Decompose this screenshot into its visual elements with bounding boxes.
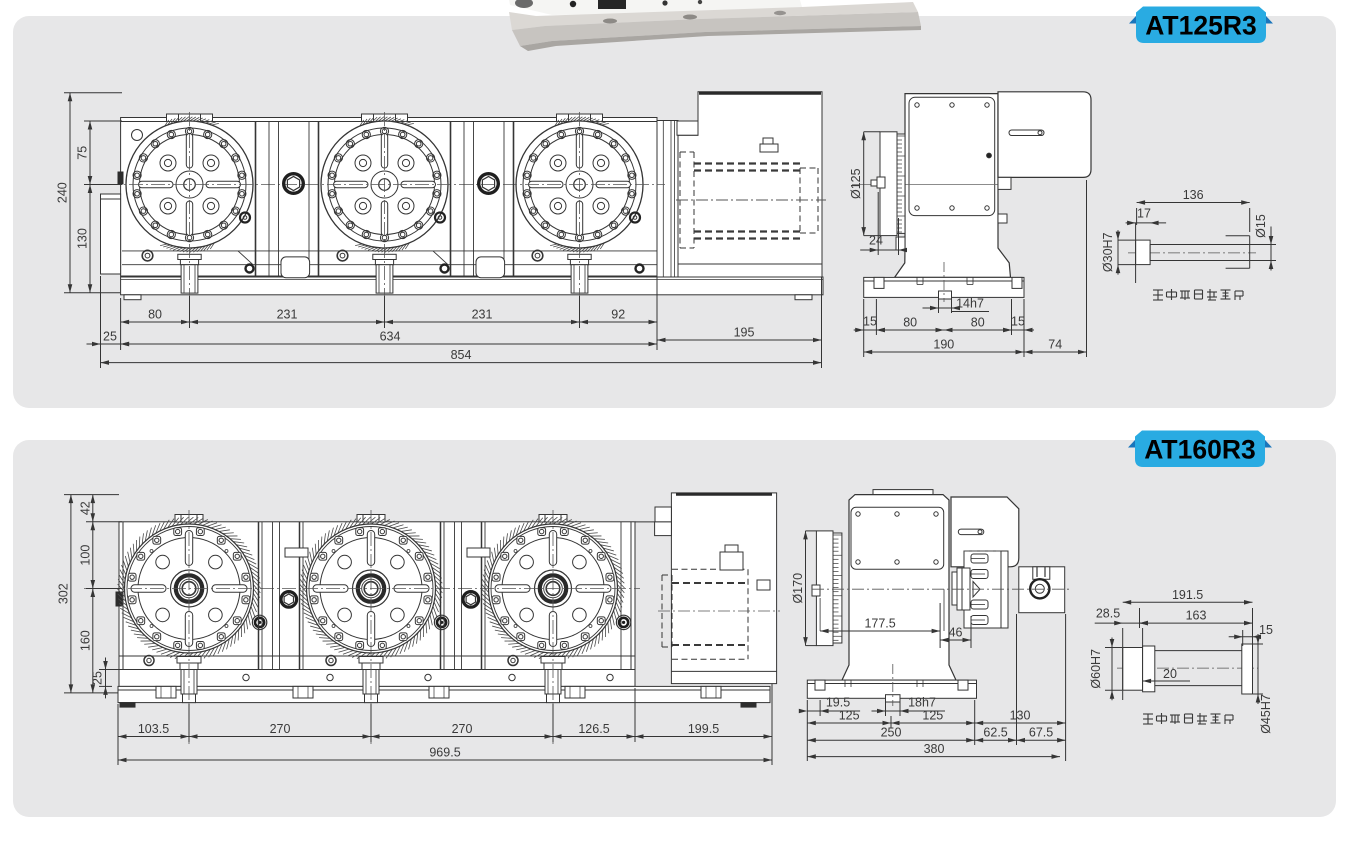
svg-text:18h7: 18h7 xyxy=(908,696,936,710)
svg-text:Ø170: Ø170 xyxy=(791,573,805,604)
svg-text:25: 25 xyxy=(103,330,117,344)
svg-text:195: 195 xyxy=(734,326,755,340)
svg-text:130: 130 xyxy=(76,228,90,249)
svg-text:160: 160 xyxy=(78,630,92,651)
svg-text:Ø15: Ø15 xyxy=(1254,214,1268,238)
svg-text:67.5: 67.5 xyxy=(1029,726,1053,740)
svg-text:46: 46 xyxy=(949,626,963,640)
svg-text:250: 250 xyxy=(881,726,902,740)
svg-text:AT160R3: AT160R3 xyxy=(1144,435,1255,465)
svg-text:199.5: 199.5 xyxy=(688,722,719,736)
svg-text:126.5: 126.5 xyxy=(578,722,609,736)
svg-text:20: 20 xyxy=(1163,667,1177,681)
svg-text:75: 75 xyxy=(76,146,90,160)
svg-text:80: 80 xyxy=(903,316,917,330)
svg-text:15: 15 xyxy=(1011,315,1025,329)
svg-text:270: 270 xyxy=(270,722,291,736)
svg-text:177.5: 177.5 xyxy=(864,617,895,631)
svg-text:634: 634 xyxy=(380,330,401,344)
svg-text:Ø125: Ø125 xyxy=(849,168,863,199)
svg-text:969.5: 969.5 xyxy=(429,746,460,760)
svg-text:190: 190 xyxy=(933,338,954,352)
svg-text:130: 130 xyxy=(1010,709,1031,723)
svg-text:191.5: 191.5 xyxy=(1172,588,1203,602)
svg-text:125: 125 xyxy=(922,709,943,723)
svg-text:136: 136 xyxy=(1183,188,1204,202)
svg-text:163: 163 xyxy=(1186,609,1207,623)
svg-text:AT125R3: AT125R3 xyxy=(1145,11,1256,41)
svg-text:Ø30H7: Ø30H7 xyxy=(1101,232,1115,272)
svg-text:15: 15 xyxy=(1259,623,1273,637)
svg-text:14h7: 14h7 xyxy=(956,297,984,311)
svg-text:42: 42 xyxy=(78,501,92,515)
svg-text:302: 302 xyxy=(56,583,70,604)
svg-text:80: 80 xyxy=(148,308,162,322)
svg-text:15: 15 xyxy=(863,315,877,329)
svg-text:25: 25 xyxy=(91,671,105,685)
svg-text:100: 100 xyxy=(78,545,92,566)
svg-text:92: 92 xyxy=(611,308,625,322)
svg-text:103.5: 103.5 xyxy=(138,722,169,736)
svg-text:17: 17 xyxy=(1137,207,1151,221)
svg-text:125: 125 xyxy=(839,709,860,723)
svg-text:380: 380 xyxy=(924,742,945,756)
svg-text:Ø45H7: Ø45H7 xyxy=(1259,694,1273,734)
svg-text:854: 854 xyxy=(451,348,472,362)
svg-text:62.5: 62.5 xyxy=(983,726,1007,740)
svg-text:80: 80 xyxy=(971,316,985,330)
svg-text:24: 24 xyxy=(869,234,883,248)
svg-text:74: 74 xyxy=(1048,338,1062,352)
svg-text:28.5: 28.5 xyxy=(1096,607,1120,621)
svg-text:270: 270 xyxy=(452,722,473,736)
svg-text:19.5: 19.5 xyxy=(826,696,850,710)
svg-text:231: 231 xyxy=(472,308,493,322)
svg-text:Ø60H7: Ø60H7 xyxy=(1089,649,1103,689)
svg-text:231: 231 xyxy=(277,308,298,322)
svg-text:240: 240 xyxy=(56,182,70,203)
